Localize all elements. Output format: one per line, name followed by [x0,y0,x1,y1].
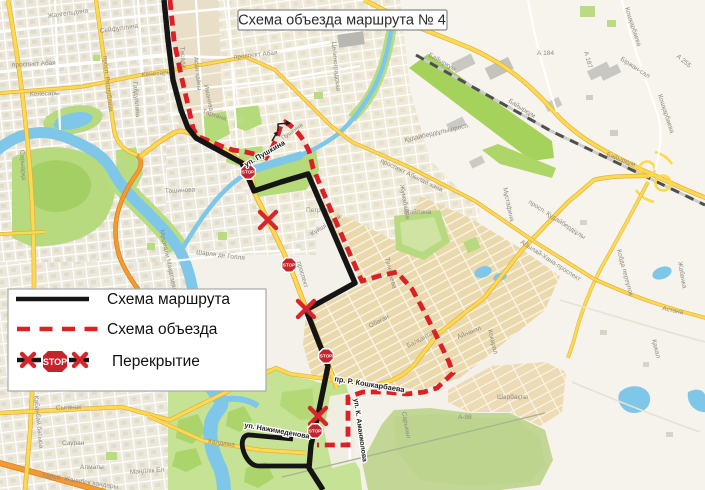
svg-text:Схема объезда маршрута № 4: Схема объезда маршрута № 4 [238,13,446,29]
svg-text:Кенесары: Кенесары [30,90,60,98]
svg-text:Шарбақты: Шарбақты [497,393,528,401]
svg-text:STOP: STOP [283,263,295,268]
svg-text:А 184: А 184 [537,50,554,57]
svg-text:Сауран: Сауран [62,440,85,447]
svg-text:STOP: STOP [43,357,67,367]
svg-text:Перекрытие: Перекрытие [112,353,200,370]
svg-text:STOP: STOP [242,170,254,175]
svg-text:Алматы: Алматы [80,464,104,471]
svg-text:Майлина: Майлина [404,208,432,216]
svg-text:А-98: А-98 [458,414,472,421]
svg-text:Схема маршрута: Схема маршрута [107,291,230,308]
svg-text:STOP: STOP [320,354,332,359]
svg-text:STOP: STOP [309,429,321,434]
svg-text:Схема объезда: Схема объезда [107,321,218,338]
svg-text:Сыганак: Сыганак [56,404,82,412]
